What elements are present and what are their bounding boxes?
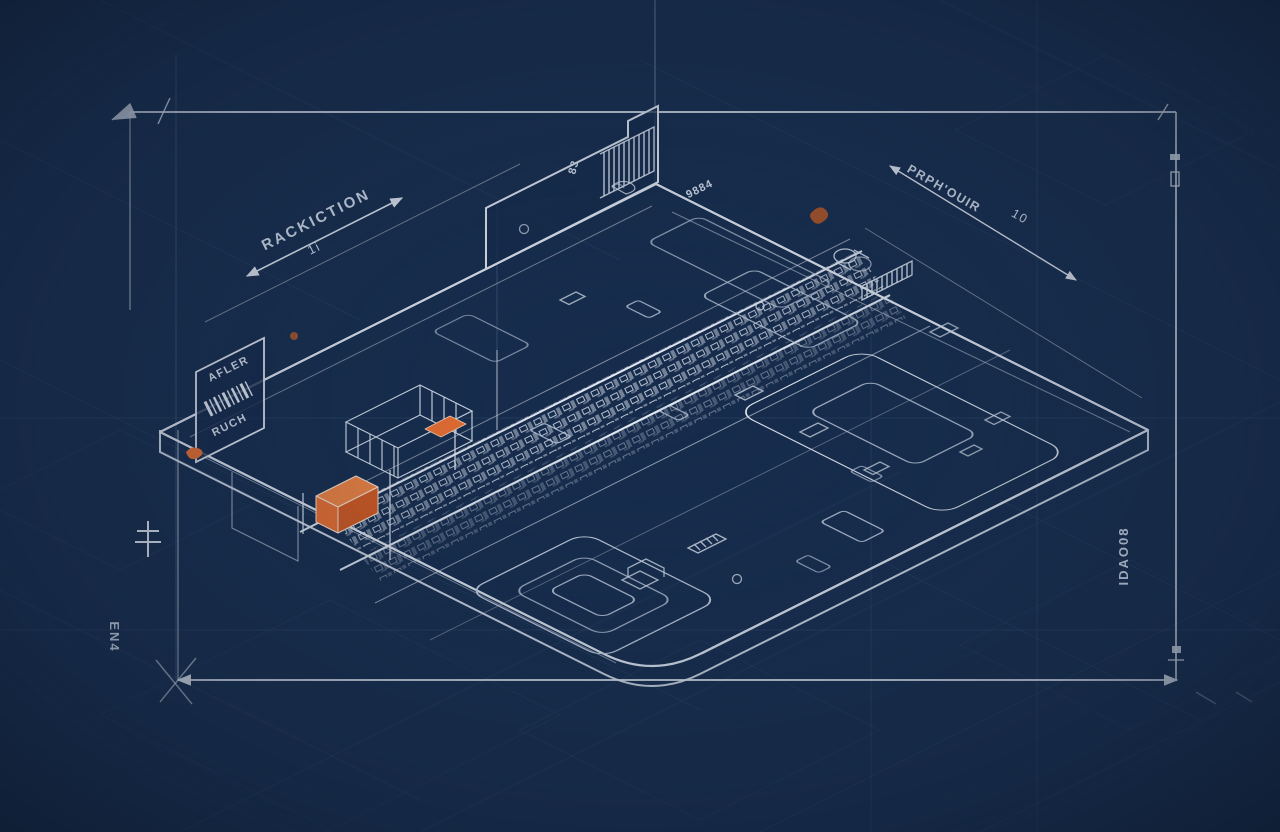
blueprint-stage: RACKICTION 1i PRPH'OUIR 10 bbox=[0, 0, 1280, 832]
vignette-overlay bbox=[0, 0, 1280, 832]
blueprint-drawing: RACKICTION 1i PRPH'OUIR 10 bbox=[0, 0, 1280, 832]
